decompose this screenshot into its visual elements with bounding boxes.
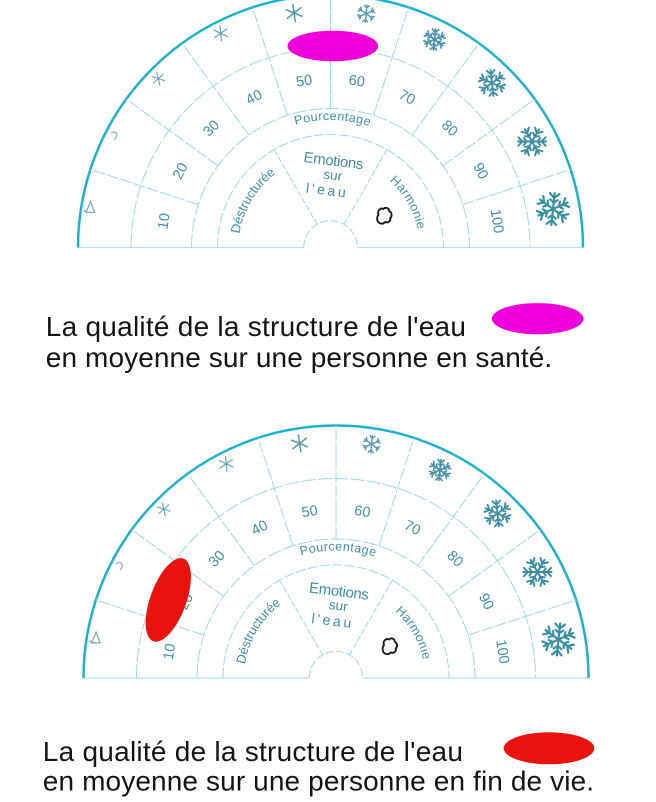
svg-text:La qualité de la structure de: La qualité de la structure de l'eau (46, 311, 466, 342)
svg-text:en moyenne sur une personne en: en moyenne sur une personne en santé. (46, 342, 553, 373)
svg-text:en moyenne sur une personne en: en moyenne sur une personne en fin de vi… (43, 766, 594, 797)
svg-text:La qualité de la structure de: La qualité de la structure de l'eau (43, 736, 463, 767)
